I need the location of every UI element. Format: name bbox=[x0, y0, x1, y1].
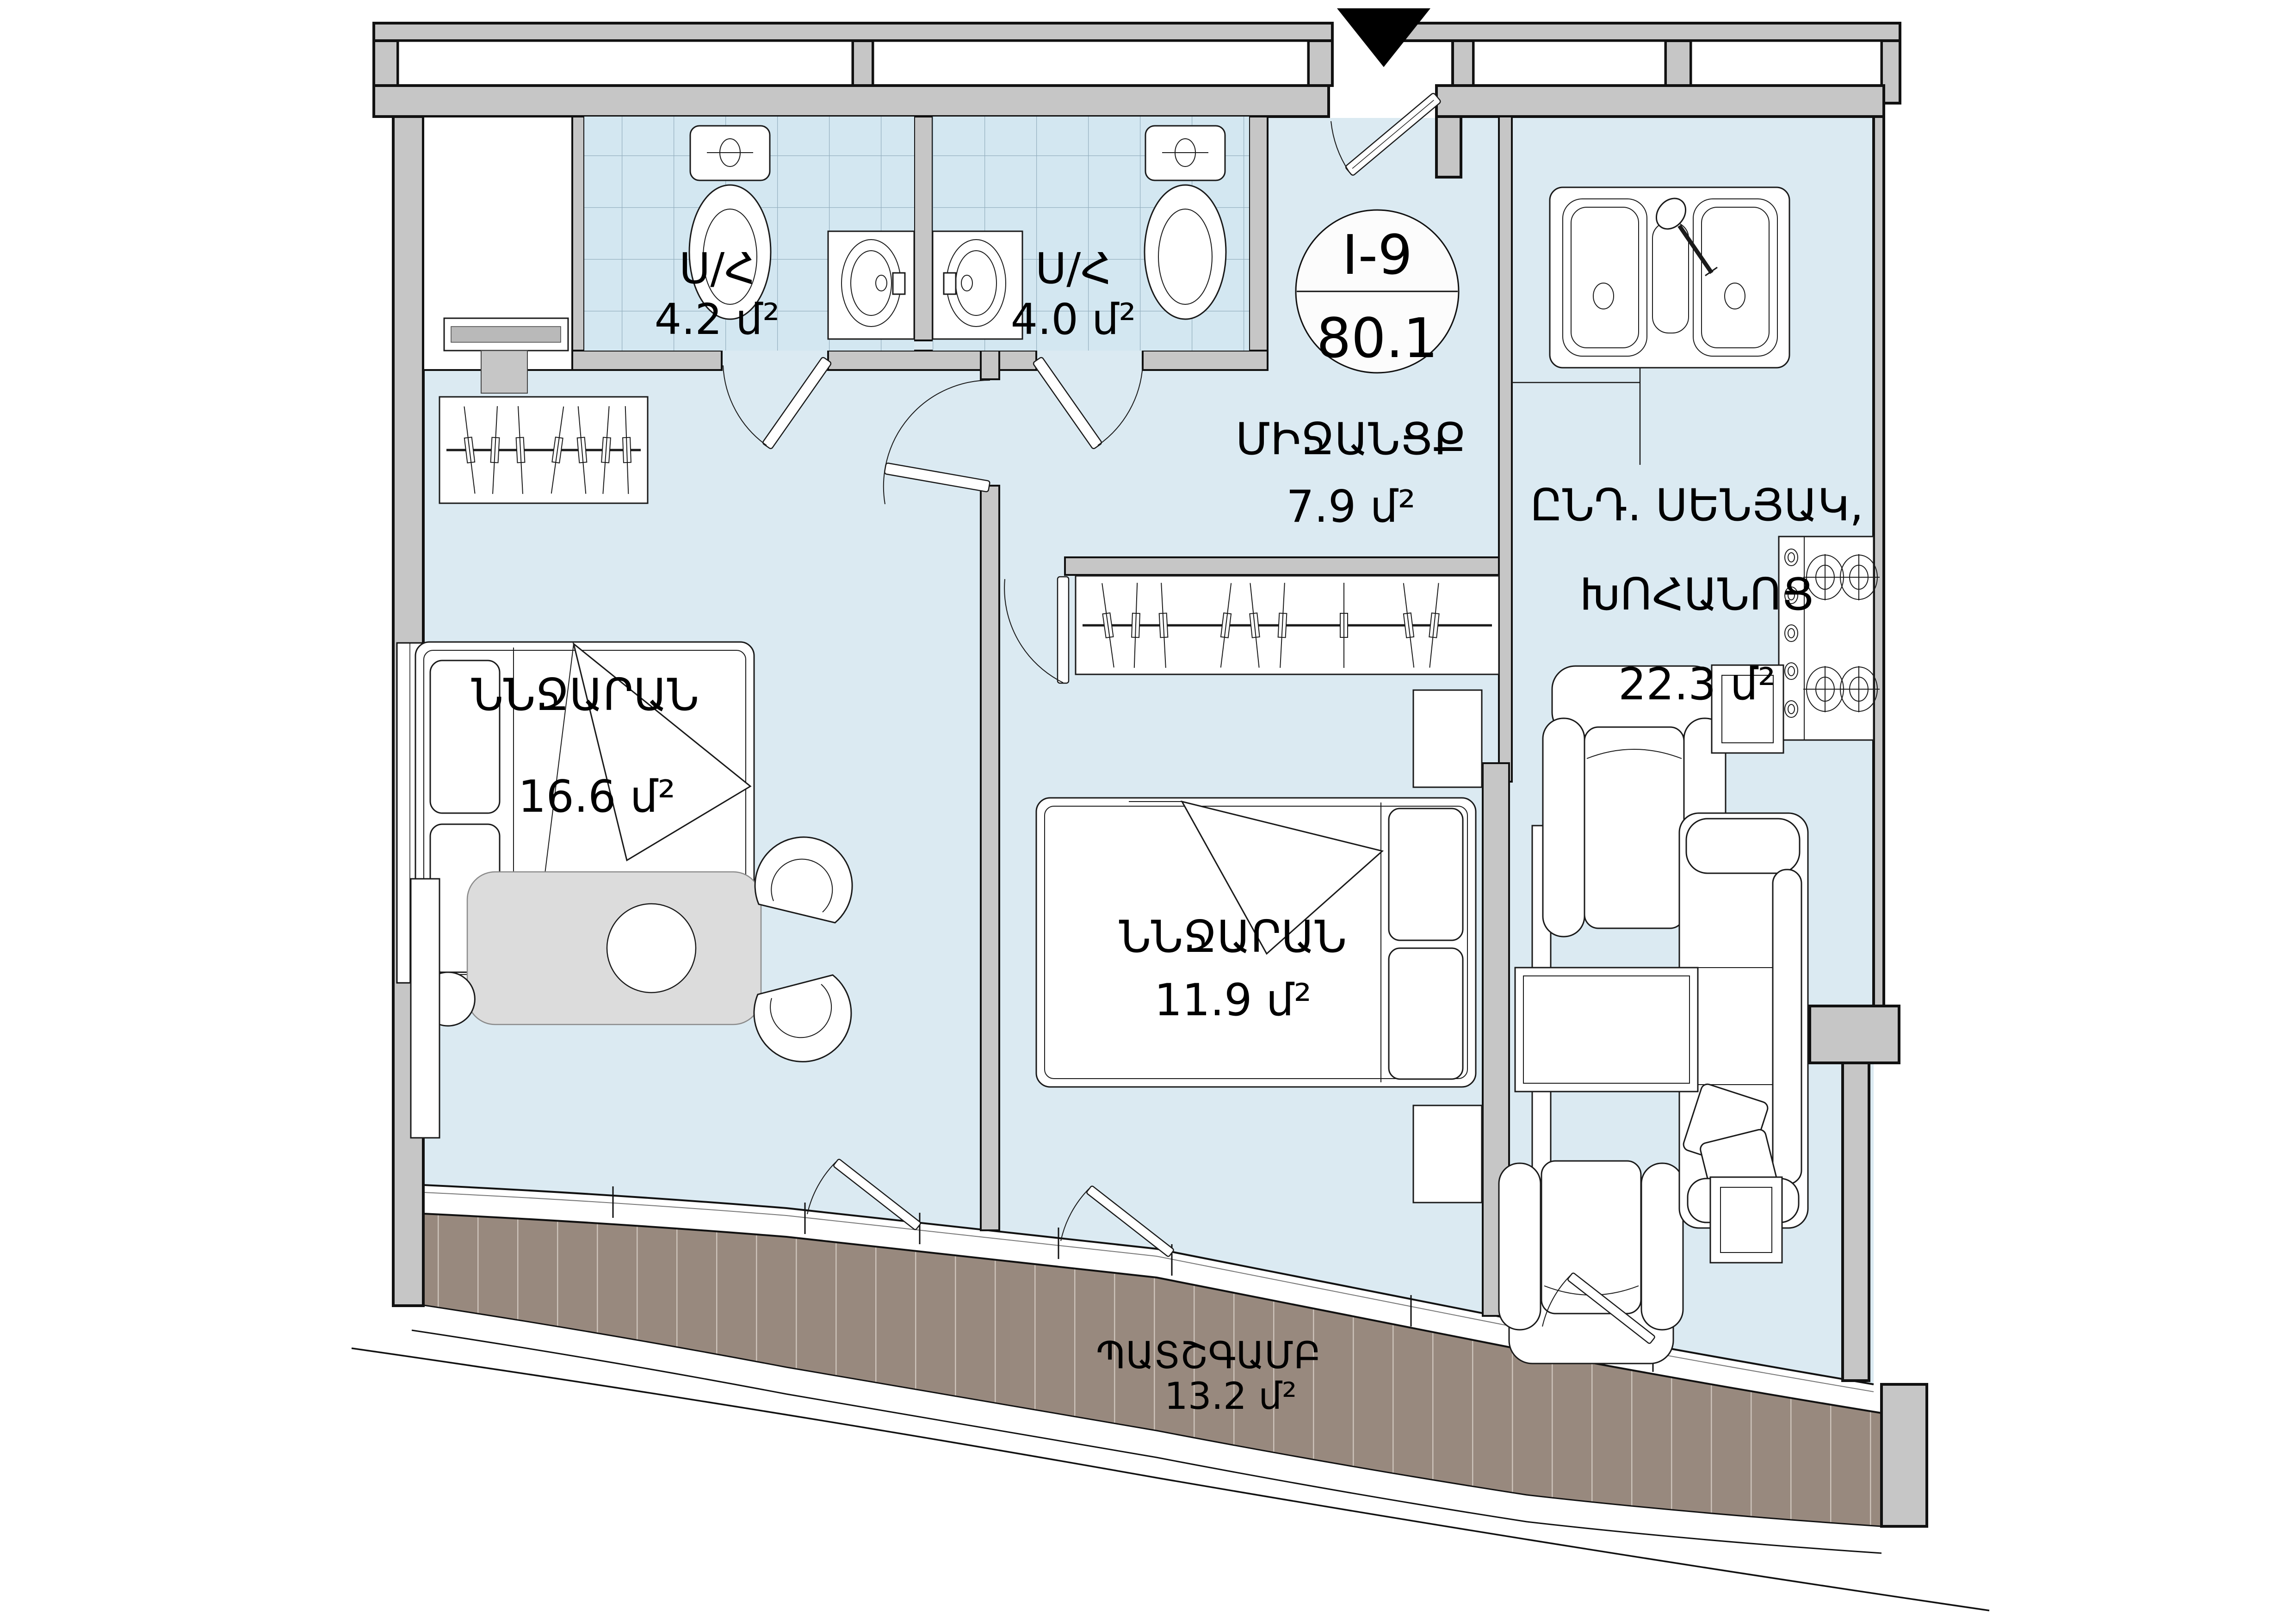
floor-plan: I-9 80.1 Ս/Հ 4.2 մ² Ս/Հ 4.0 մ² ՄԻՋԱՆՑՔ 7… bbox=[0, 0, 2296, 1623]
unit-badge: I-9 80.1 bbox=[1296, 210, 1459, 373]
living-kitchen-name-2: ԽՈՀԱՆՈՑ bbox=[1579, 569, 1814, 620]
washbasin-1 bbox=[828, 231, 914, 339]
sofa bbox=[1679, 813, 1808, 1228]
wardrobe-bedroom2 bbox=[1076, 576, 1499, 674]
balcony-name: ՊԱՏՇԳԱՄԲ bbox=[1096, 1334, 1321, 1377]
bedroom2-area: 11.9 մ² bbox=[1154, 975, 1312, 1026]
living-kitchen-name-1: ԸՆԴ. ՍԵՆՅԱԿ, bbox=[1530, 480, 1864, 531]
unit-code: I-9 bbox=[1342, 223, 1412, 287]
bedroom2-name: ՆՆՋԱՐԱՆ bbox=[1119, 912, 1347, 963]
side-table-bottom bbox=[1710, 1177, 1782, 1263]
nightstand-bedroom2-top bbox=[1413, 690, 1482, 787]
bathroom1-name: Ս/Հ bbox=[679, 244, 755, 293]
bedroom1-name: ՆՆՋԱՐԱՆ bbox=[471, 670, 699, 721]
utility-shaft bbox=[423, 117, 572, 393]
coffee-table bbox=[1515, 968, 1698, 1092]
kitchen-stove bbox=[1779, 537, 1880, 740]
wardrobe-bedroom1 bbox=[439, 397, 648, 503]
hallway-area: 7.9 մ² bbox=[1286, 481, 1416, 532]
hallway-name: ՄԻՋԱՆՑՔ bbox=[1236, 414, 1466, 465]
balcony-area: 13.2 մ² bbox=[1164, 1375, 1297, 1418]
living-kitchen-area: 22.3 մ² bbox=[1618, 659, 1776, 710]
bathroom2-area: 4.0 մ² bbox=[1011, 295, 1136, 344]
bedroom1-area: 16.6 մ² bbox=[518, 771, 675, 822]
nightstand-bedroom2-bottom bbox=[1413, 1105, 1482, 1203]
unit-area: 80.1 bbox=[1317, 306, 1438, 370]
bathroom1-area: 4.2 մ² bbox=[655, 295, 780, 344]
toilet-2 bbox=[1145, 126, 1226, 319]
bathroom2-name: Ս/Հ bbox=[1035, 244, 1111, 293]
kitchen-sink bbox=[1550, 187, 1789, 368]
washbasin-2 bbox=[933, 231, 1022, 339]
armchair-bottom bbox=[1499, 1161, 1683, 1364]
